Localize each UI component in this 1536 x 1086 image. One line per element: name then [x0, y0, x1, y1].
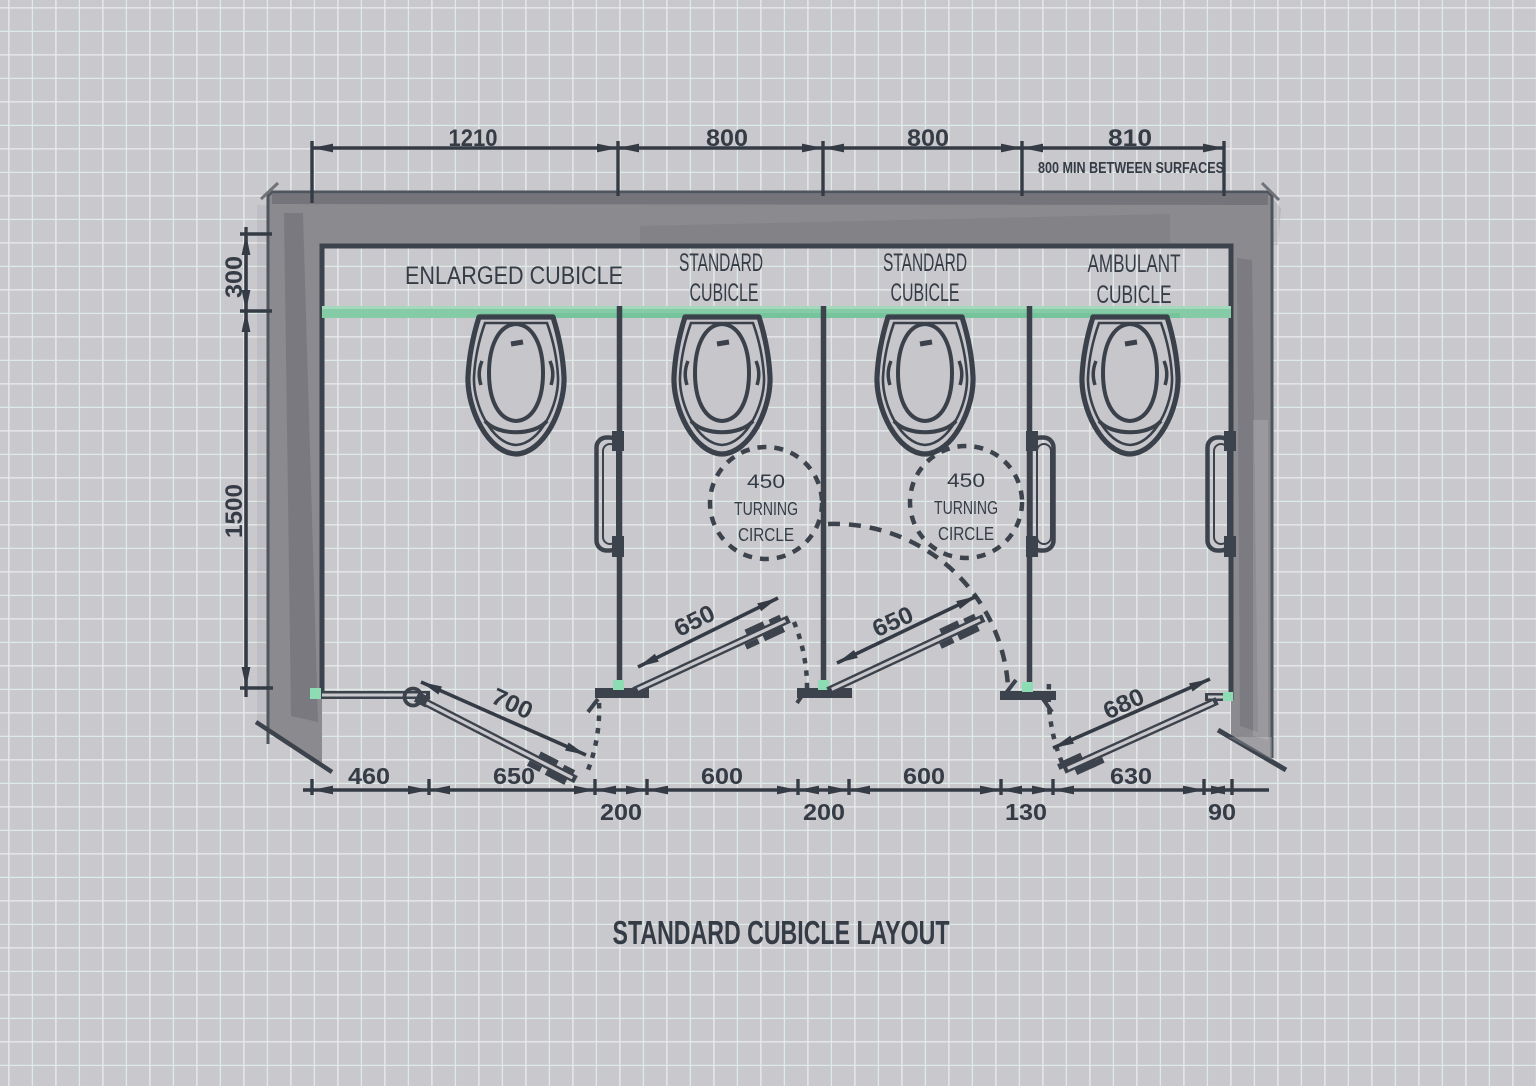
- svg-text:STANDARD: STANDARD: [883, 249, 967, 277]
- svg-text:450: 450: [947, 471, 985, 492]
- svg-text:CUBICLE: CUBICLE: [891, 279, 960, 307]
- svg-text:130: 130: [1005, 799, 1047, 825]
- svg-text:90: 90: [1208, 799, 1236, 825]
- svg-text:CIRCLE: CIRCLE: [738, 525, 794, 545]
- svg-text:600: 600: [701, 763, 743, 789]
- svg-text:TURNING: TURNING: [934, 498, 998, 518]
- svg-text:200: 200: [803, 799, 845, 825]
- svg-text:450: 450: [747, 472, 785, 493]
- svg-text:TURNING: TURNING: [734, 499, 798, 519]
- svg-text:1500: 1500: [221, 484, 248, 538]
- svg-text:460: 460: [348, 763, 390, 789]
- svg-text:CUBICLE: CUBICLE: [1097, 281, 1172, 309]
- svg-text:ENLARGED CUBICLE: ENLARGED CUBICLE: [405, 262, 623, 290]
- svg-text:AMBULANT: AMBULANT: [1088, 250, 1181, 278]
- svg-text:600: 600: [903, 763, 945, 789]
- svg-text:200: 200: [600, 799, 642, 825]
- svg-text:800: 800: [706, 125, 748, 152]
- svg-text:650: 650: [493, 763, 535, 789]
- svg-text:810: 810: [1108, 125, 1152, 152]
- svg-text:CUBICLE: CUBICLE: [690, 279, 759, 307]
- svg-text:STANDARD CUBICLE LAYOUT: STANDARD CUBICLE LAYOUT: [613, 914, 950, 951]
- svg-text:630: 630: [1110, 763, 1152, 789]
- svg-text:1210: 1210: [449, 125, 498, 152]
- svg-text:STANDARD: STANDARD: [679, 249, 763, 277]
- svg-text:800: 800: [907, 125, 949, 152]
- svg-text:800 MIN BETWEEN SURFACES: 800 MIN BETWEEN SURFACES: [1038, 160, 1224, 177]
- svg-text:CIRCLE: CIRCLE: [938, 524, 994, 544]
- svg-text:300: 300: [221, 256, 248, 298]
